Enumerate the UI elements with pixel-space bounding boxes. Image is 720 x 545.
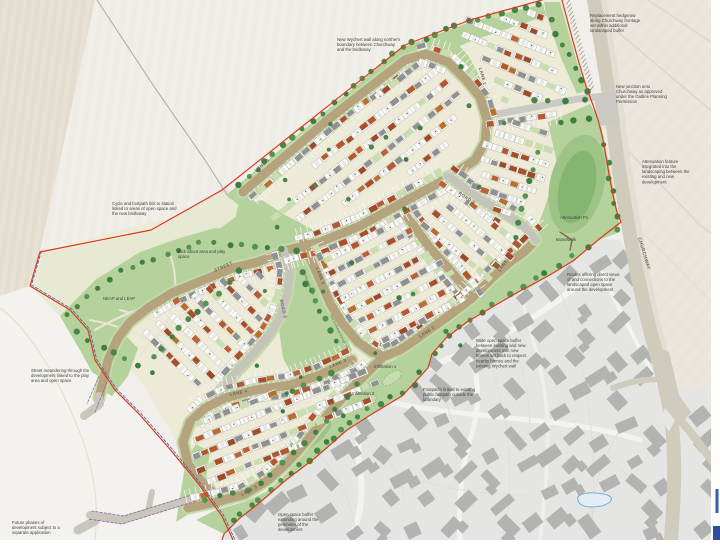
svg-text:Infiltration 2: Infiltration 2 bbox=[352, 391, 375, 396]
svg-text:Routes offering direct viewsof: Routes offering direct viewsof and conne… bbox=[567, 272, 620, 292]
svg-text:Boardwalk: Boardwalk bbox=[556, 237, 577, 242]
svg-text:Infiltration 1: Infiltration 1 bbox=[374, 364, 397, 369]
svg-text:Attenuation P1: Attenuation P1 bbox=[560, 215, 589, 220]
svg-text:NEAP and LEAP: NEAP and LEAP bbox=[103, 296, 135, 301]
